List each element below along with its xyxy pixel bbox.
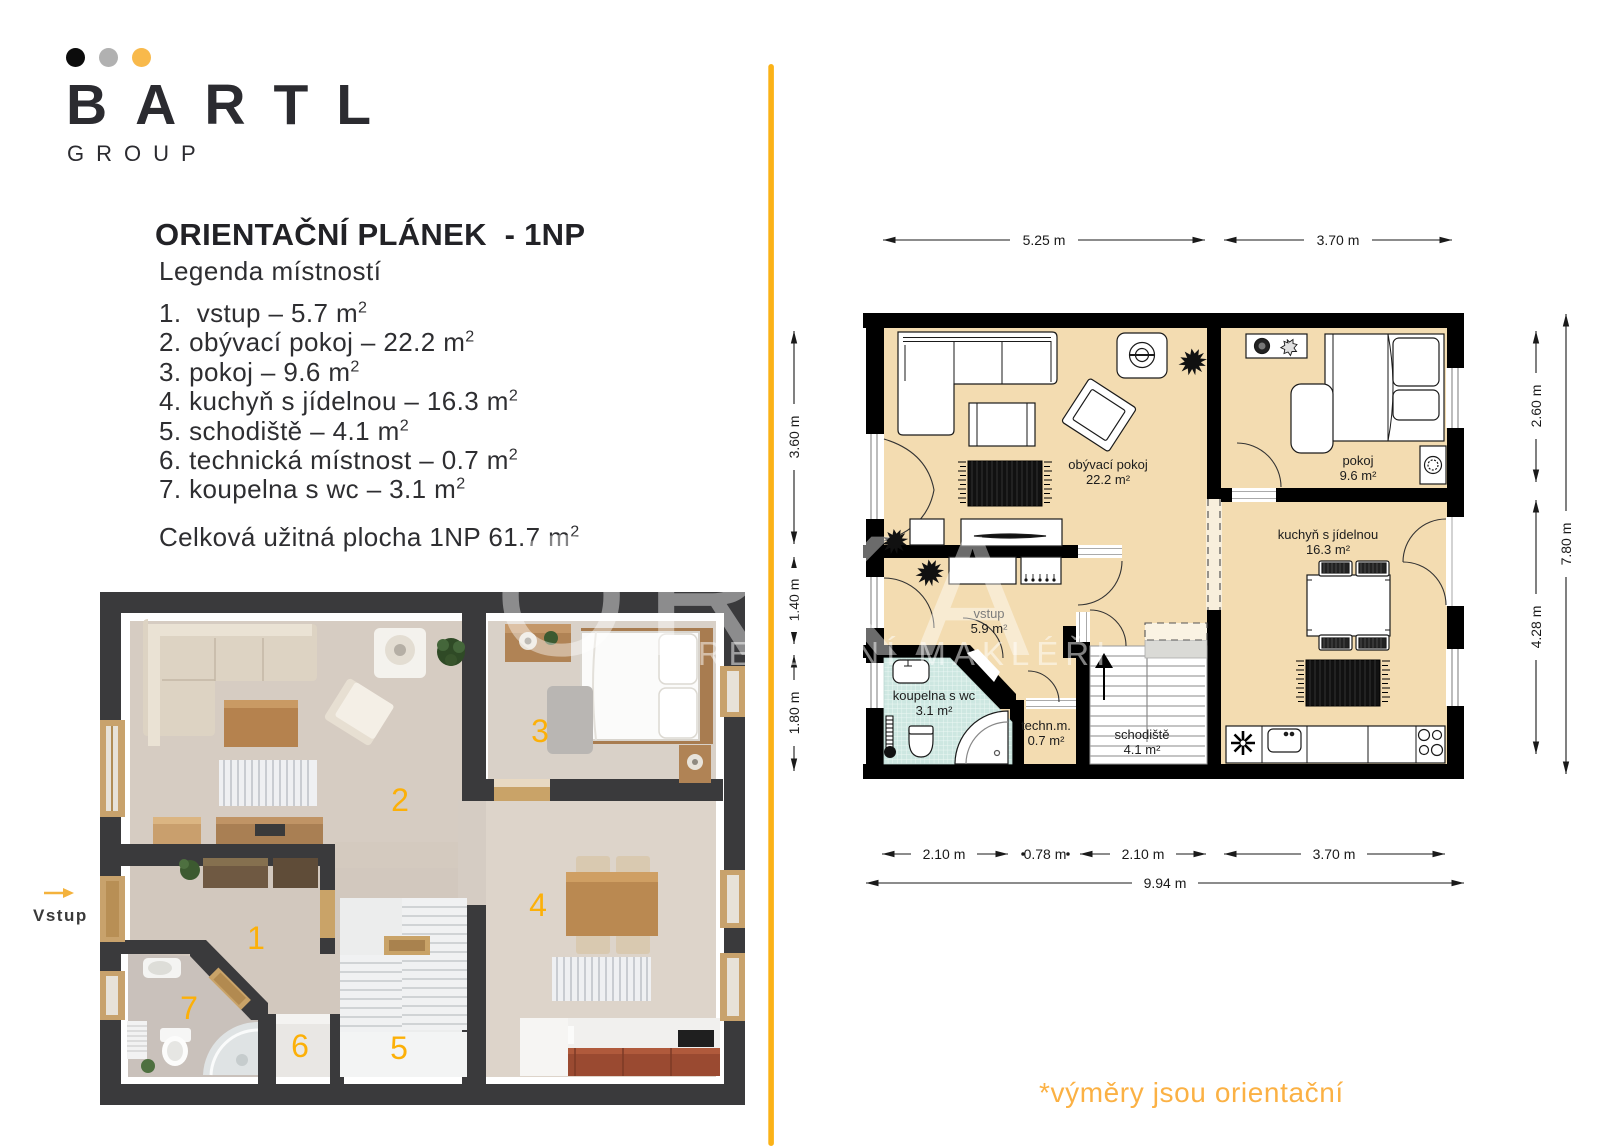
svg-text:0.7 m²: 0.7 m² — [1028, 733, 1066, 748]
svg-text:22.2 m²: 22.2 m² — [1086, 472, 1131, 487]
svg-text:3: 3 — [531, 713, 549, 749]
svg-text:2.10 m: 2.10 m — [1122, 846, 1165, 862]
svg-text:1.80 m: 1.80 m — [786, 692, 802, 735]
svg-text:2: 2 — [391, 782, 409, 818]
svg-text:7: 7 — [180, 990, 198, 1026]
svg-text:0.78 m: 0.78 m — [1024, 846, 1067, 862]
svg-text:3.70 m: 3.70 m — [1313, 846, 1356, 862]
svg-text:6: 6 — [291, 1028, 309, 1064]
svg-text:9.94 m: 9.94 m — [1144, 875, 1187, 891]
svg-text:2.10 m: 2.10 m — [923, 846, 966, 862]
svg-text:schodiště: schodiště — [1115, 727, 1170, 742]
svg-text:5: 5 — [390, 1030, 408, 1066]
svg-text:2.60 m: 2.60 m — [1528, 385, 1544, 428]
svg-text:techn.m.: techn.m. — [1021, 718, 1071, 733]
svg-text:3.1 m²: 3.1 m² — [916, 703, 954, 718]
svg-text:4: 4 — [529, 887, 547, 923]
svg-text:16.3 m²: 16.3 m² — [1306, 542, 1351, 557]
svg-text:4.1 m²: 4.1 m² — [1124, 742, 1162, 757]
svg-text:REALITNÍ MAKLÉŘI: REALITNÍ MAKLÉŘI — [698, 635, 1113, 672]
svg-text:kuchyň s jídelnou: kuchyň s jídelnou — [1278, 527, 1378, 542]
svg-text:obývací pokoj: obývací pokoj — [1068, 457, 1148, 472]
svg-text:4.28 m: 4.28 m — [1528, 606, 1544, 649]
svg-text:3.70 m: 3.70 m — [1317, 232, 1360, 248]
svg-text:pokoj: pokoj — [1342, 453, 1373, 468]
svg-text:5.25 m: 5.25 m — [1023, 232, 1066, 248]
svg-text:1: 1 — [247, 920, 265, 956]
svg-text:3.60 m: 3.60 m — [786, 416, 802, 459]
svg-text:9.6 m²: 9.6 m² — [1340, 468, 1378, 483]
svg-text:7.80 m: 7.80 m — [1558, 523, 1574, 566]
